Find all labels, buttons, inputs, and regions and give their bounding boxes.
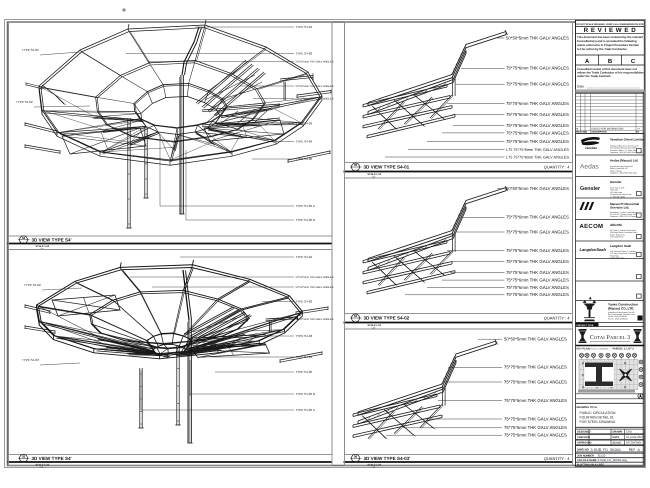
svg-text:5.4 for action by the Trade Co: 5.4 for action by the Trade Contractor. xyxy=(577,47,628,51)
svg-text:CHECKED: CHECKED xyxy=(577,436,590,439)
svg-text:DRAWN: DRAWN xyxy=(613,431,623,434)
svg-text:PARCEL 1, LOT 2: PARCEL 1, LOT 2 xyxy=(613,348,635,351)
svg-text:(Macau) CO, LTD.: (Macau) CO, LTD. xyxy=(608,306,634,310)
svg-text:75*75*6mm THK GALV ANGLES: 75*75*6mm THK GALV ANGLES xyxy=(504,398,567,403)
svg-text:-: - xyxy=(23,240,24,244)
svg-text:TYPE S4-03: TYPE S4-03 xyxy=(296,334,313,338)
svg-text:DESIGNED: DESIGNED xyxy=(577,431,591,434)
svg-text:TYPE S4-02: TYPE S4-02 xyxy=(24,283,41,287)
svg-text:Fax No : (853) 28785033: Fax No : (853) 28785033 xyxy=(608,317,627,320)
svg-text:75*75*6mm THK GALV ANGLES: 75*75*6mm THK GALV ANGLES xyxy=(506,130,569,135)
svg-text:COTAI PARCEL 3: COTAI PARCEL 3 xyxy=(590,335,630,341)
svg-text:QUANTITY : 4: QUANTITY : 4 xyxy=(544,316,570,321)
svg-text:SCALE: SCALE xyxy=(613,442,622,445)
svg-text:Telephone : (853) 2833 1033 F: Telephone : (853) 2833 1033 Facsi xyxy=(610,172,638,175)
svg-text:3D VIEW TYPE S4-02: 3D VIEW TYPE S4-02 xyxy=(364,316,410,321)
svg-text:DO NOT SCALE DRAWING. VERIFY A: DO NOT SCALE DRAWING. VERIFY ALL DIMENSI… xyxy=(576,23,644,26)
svg-text:TYPE S4-01: TYPE S4-01 xyxy=(296,255,313,259)
svg-text:75*75*6mm THK GALV ANGLES: 75*75*6mm THK GALV ANGLES xyxy=(504,379,567,384)
svg-text:3-SUB_FD_SK004: 3-SUB_FD_SK004 xyxy=(591,448,621,452)
svg-text:3-SUB_FD_SK004.dwg: 3-SUB_FD_SK004.dwg xyxy=(598,458,628,462)
svg-text:Aedas: Aedas xyxy=(580,164,599,171)
svg-text:QUANTITY : 4: QUANTITY : 4 xyxy=(544,456,570,461)
svg-text:3D VIEW TYPE S4-01: 3D VIEW TYPE S4-01 xyxy=(364,165,410,170)
svg-text:-: - xyxy=(355,459,356,463)
svg-text:L75 75*75*6mm THK GALV ANGLES: L75 75*75*6mm THK GALV ANGLES xyxy=(506,148,569,152)
svg-text:Gensler: Gensler xyxy=(580,186,601,192)
svg-text:31520: 31520 xyxy=(598,454,606,458)
svg-text:C: C xyxy=(631,58,636,65)
svg-text:1:10: 1:10 xyxy=(372,466,376,469)
svg-text:75*75*6mm THK GALV ANGLES: 75*75*6mm THK GALV ANGLES xyxy=(504,433,567,438)
svg-text:under the Trade Contract.: under the Trade Contract. xyxy=(577,74,611,78)
svg-text:AECOM: AECOM xyxy=(580,223,604,230)
svg-text:A: A xyxy=(638,448,641,452)
svg-text:50*50*5mm THK GALV ANGLES: 50*50*5mm THK GALV ANGLES xyxy=(296,85,334,88)
svg-text:B: B xyxy=(608,58,613,65)
svg-text:75*75*6mm THK GALV ANGLES: 75*75*6mm THK GALV ANGLES xyxy=(506,123,569,128)
svg-text:DATE: DATE xyxy=(613,436,620,439)
svg-text:1:10: 1:10 xyxy=(40,466,44,469)
svg-text:Date :: Date : xyxy=(577,85,586,89)
svg-text:TYPE S4-04: TYPE S4-04 xyxy=(296,355,313,359)
svg-text:75*75*6mm THK GALV ANGLES: 75*75*6mm THK GALV ANGLES xyxy=(506,66,569,71)
svg-text:TYPE S4-03: TYPE S4-03 xyxy=(22,358,39,362)
svg-text:75*75*6mm THK GALV ANGLES: 75*75*6mm THK GALV ANGLES xyxy=(506,259,569,264)
svg-text:3D VIEW TYPE S4': 3D VIEW TYPE S4' xyxy=(32,456,72,461)
svg-text:TY: TY xyxy=(637,127,640,130)
svg-text:-: - xyxy=(600,442,601,445)
svg-text:75*75*6mm THK GALV ANGLES: 75*75*6mm THK GALV ANGLES xyxy=(504,365,567,370)
svg-text:50*50*5mm THK GALV ANGLES: 50*50*5mm THK GALV ANGLES xyxy=(506,35,569,40)
svg-text:75*75*6mm THK GALV ANGLES: 75*75*6mm THK GALV ANGLES xyxy=(506,278,569,283)
svg-text:TYPE S4-01: TYPE S4-01 xyxy=(296,25,313,29)
svg-text:TYPE S4-05 A: TYPE S4-05 A xyxy=(296,408,315,412)
svg-text:75*75*6mm THK GALV ANGLES: 75*75*6mm THK GALV ANGLES xyxy=(506,285,569,290)
svg-text:75*75*6mm THK GALV ANGLES: 75*75*6mm THK GALV ANGLES xyxy=(506,215,569,220)
svg-text:75*75*6mm THK GALV ANGLES: 75*75*6mm THK GALV ANGLES xyxy=(506,270,569,275)
svg-text:PLOTTING ON A1 SIZE: PLOTTING ON A1 SIZE xyxy=(577,464,604,467)
svg-text:APPROVED: APPROVED xyxy=(577,442,592,445)
svg-text:■: ■ xyxy=(577,127,579,130)
svg-text:ISSUED FOR INFORMATION: ISSUED FOR INFORMATION xyxy=(592,127,624,130)
svg-text:50*50*5mm THK GALV ANGLES: 50*50*5mm THK GALV ANGLES xyxy=(296,286,334,289)
svg-text:FOUNTAIN DETAIL 01: FOUNTAIN DETAIL 01 xyxy=(580,416,614,420)
svg-text:Telephone : (853) 700 276 Fa: Telephone : (853) 700 276 Facsim xyxy=(610,215,637,218)
svg-text:Services Ltd.: Services Ltd. xyxy=(610,206,629,210)
svg-text:75*75*6mm THK GALV ANGLES: 75*75*6mm THK GALV ANGLES xyxy=(504,416,567,421)
svg-text:50*50*5mm THK GALV ANGLES: 50*50*5mm THK GALV ANGLES xyxy=(296,276,334,279)
svg-text:50*50*5mm THK GALV ANGLES: 50*50*5mm THK GALV ANGLES xyxy=(506,186,569,191)
svg-text:75*75*6mm THK GALV ANGLES: 75*75*6mm THK GALV ANGLES xyxy=(504,425,567,430)
svg-text:75*75*6mm THK GALV ANGLES: 75*75*6mm THK GALV ANGLES xyxy=(506,139,569,144)
svg-text:TYPE S4-03: TYPE S4-03 xyxy=(296,122,313,126)
svg-text:FOR STEEL DRAWING: FOR STEEL DRAWING xyxy=(580,420,616,424)
svg-text:50*50*5mm THK GALV ANGLES: 50*50*5mm THK GALV ANGLES xyxy=(296,318,334,321)
svg-text:75*75*6mm THK GALV ANGLES: 75*75*6mm THK GALV ANGLES xyxy=(506,112,569,117)
svg-text:TYPE S4-05 B: TYPE S4-05 B xyxy=(296,392,316,396)
svg-text:TYPE S4-05: TYPE S4-05 xyxy=(296,370,313,374)
svg-text:75*75*6mm THK GALV ANGLES: 75*75*6mm THK GALV ANGLES xyxy=(506,292,569,297)
svg-text:-: - xyxy=(355,318,356,322)
svg-text:Aedas (Macau) Ltd.: Aedas (Macau) Ltd. xyxy=(610,159,639,163)
svg-text:CAD FILE NAME: CAD FILE NAME xyxy=(577,459,597,462)
svg-text:LangdonSeah: LangdonSeah xyxy=(580,247,607,252)
svg-text:L75 75*75*6mm THK GALV ANGLES: L75 75*75*6mm THK GALV ANGLES xyxy=(506,155,569,159)
svg-text:JOB NUMBER: JOB NUMBER xyxy=(577,455,594,458)
svg-text:DWG NO: DWG NO xyxy=(577,448,590,452)
svg-text:T (852) 2830 3500: T (852) 2830 3500 xyxy=(610,257,624,260)
svg-text:75*75*6mm THK GALV ANGLES: 75*75*6mm THK GALV ANGLES xyxy=(506,248,569,253)
svg-text:AS SHOWN: AS SHOWN xyxy=(626,441,641,445)
svg-text:-: - xyxy=(600,436,601,439)
svg-text:T + 852.2810.8399: T + 852.2810.8399 xyxy=(610,195,625,198)
svg-text:Langdon Seah: Langdon Seah xyxy=(610,244,631,248)
svg-text:QUANTITY : 4: QUANTITY : 4 xyxy=(544,165,570,170)
svg-text:50*50*5mm THK GALV ANGLES: 50*50*5mm THK GALV ANGLES xyxy=(504,337,567,342)
svg-text:75*75*6mm THK GALV ANGLES: 75*75*6mm THK GALV ANGLES xyxy=(506,229,569,234)
svg-text:TYPE S4-05: TYPE S4-05 xyxy=(22,48,39,52)
svg-text:Venetian Orient Limited: Venetian Orient Limited xyxy=(610,138,645,142)
svg-text:A: A xyxy=(585,58,590,65)
svg-text:-: - xyxy=(355,167,356,171)
svg-text:75*75*6mm THK GALV ANGLES: 75*75*6mm THK GALV ANGLES xyxy=(506,101,569,106)
svg-text:50*50*5mm THK GALV ANGLES: 50*50*5mm THK GALV ANGLES xyxy=(296,98,334,101)
svg-text:TYPE S4-02: TYPE S4-02 xyxy=(16,100,33,104)
svg-text:CAD: CAD xyxy=(626,430,632,434)
svg-text:75*75*6mm THK GALV ANGLES: 75*75*6mm THK GALV ANGLES xyxy=(506,82,569,87)
svg-text:SCALE 1:1500(A1): SCALE 1:1500(A1) xyxy=(590,348,609,351)
svg-text:PUBLIC CIRCULATION: PUBLIC CIRCULATION xyxy=(580,411,616,415)
svg-text:TYPE S4-02: TYPE S4-02 xyxy=(296,300,313,304)
svg-text:TYPE S4-04: TYPE S4-04 xyxy=(296,140,313,144)
svg-text:REV: REV xyxy=(629,448,635,452)
svg-text:-: - xyxy=(23,459,24,463)
svg-text:venetian: venetian xyxy=(585,146,597,150)
svg-text:Gensler: Gensler xyxy=(610,180,622,184)
svg-text:AECOM: AECOM xyxy=(610,223,622,227)
svg-text:12-AUG-2015: 12-AUG-2015 xyxy=(626,435,644,439)
svg-text:TYPE S4-05: TYPE S4-05 xyxy=(296,157,313,161)
svg-text:50*50*5mm THK GALV ANGLES: 50*50*5mm THK GALV ANGLES xyxy=(296,61,334,64)
svg-text:TYPE S4-05 B: TYPE S4-05 B xyxy=(296,218,316,222)
svg-text:KEY PLAN: KEY PLAN xyxy=(577,348,590,351)
svg-text:DRAWING TITLE: DRAWING TITLE xyxy=(577,406,598,409)
svg-text:R E V I E W E D: R E V I E W E D xyxy=(584,27,637,34)
svg-text:TYPE S4-05 A: TYPE S4-05 A xyxy=(296,204,315,208)
svg-text:T 852 3922 9000: T 852 3922 9000 xyxy=(610,236,623,239)
svg-text:TYPE S4-02: TYPE S4-02 xyxy=(296,52,313,56)
svg-text:3D VIEW TYPE S4-03': 3D VIEW TYPE S4-03' xyxy=(364,456,411,461)
svg-text:3D VIEW TYPE S4': 3D VIEW TYPE S4' xyxy=(32,237,72,242)
